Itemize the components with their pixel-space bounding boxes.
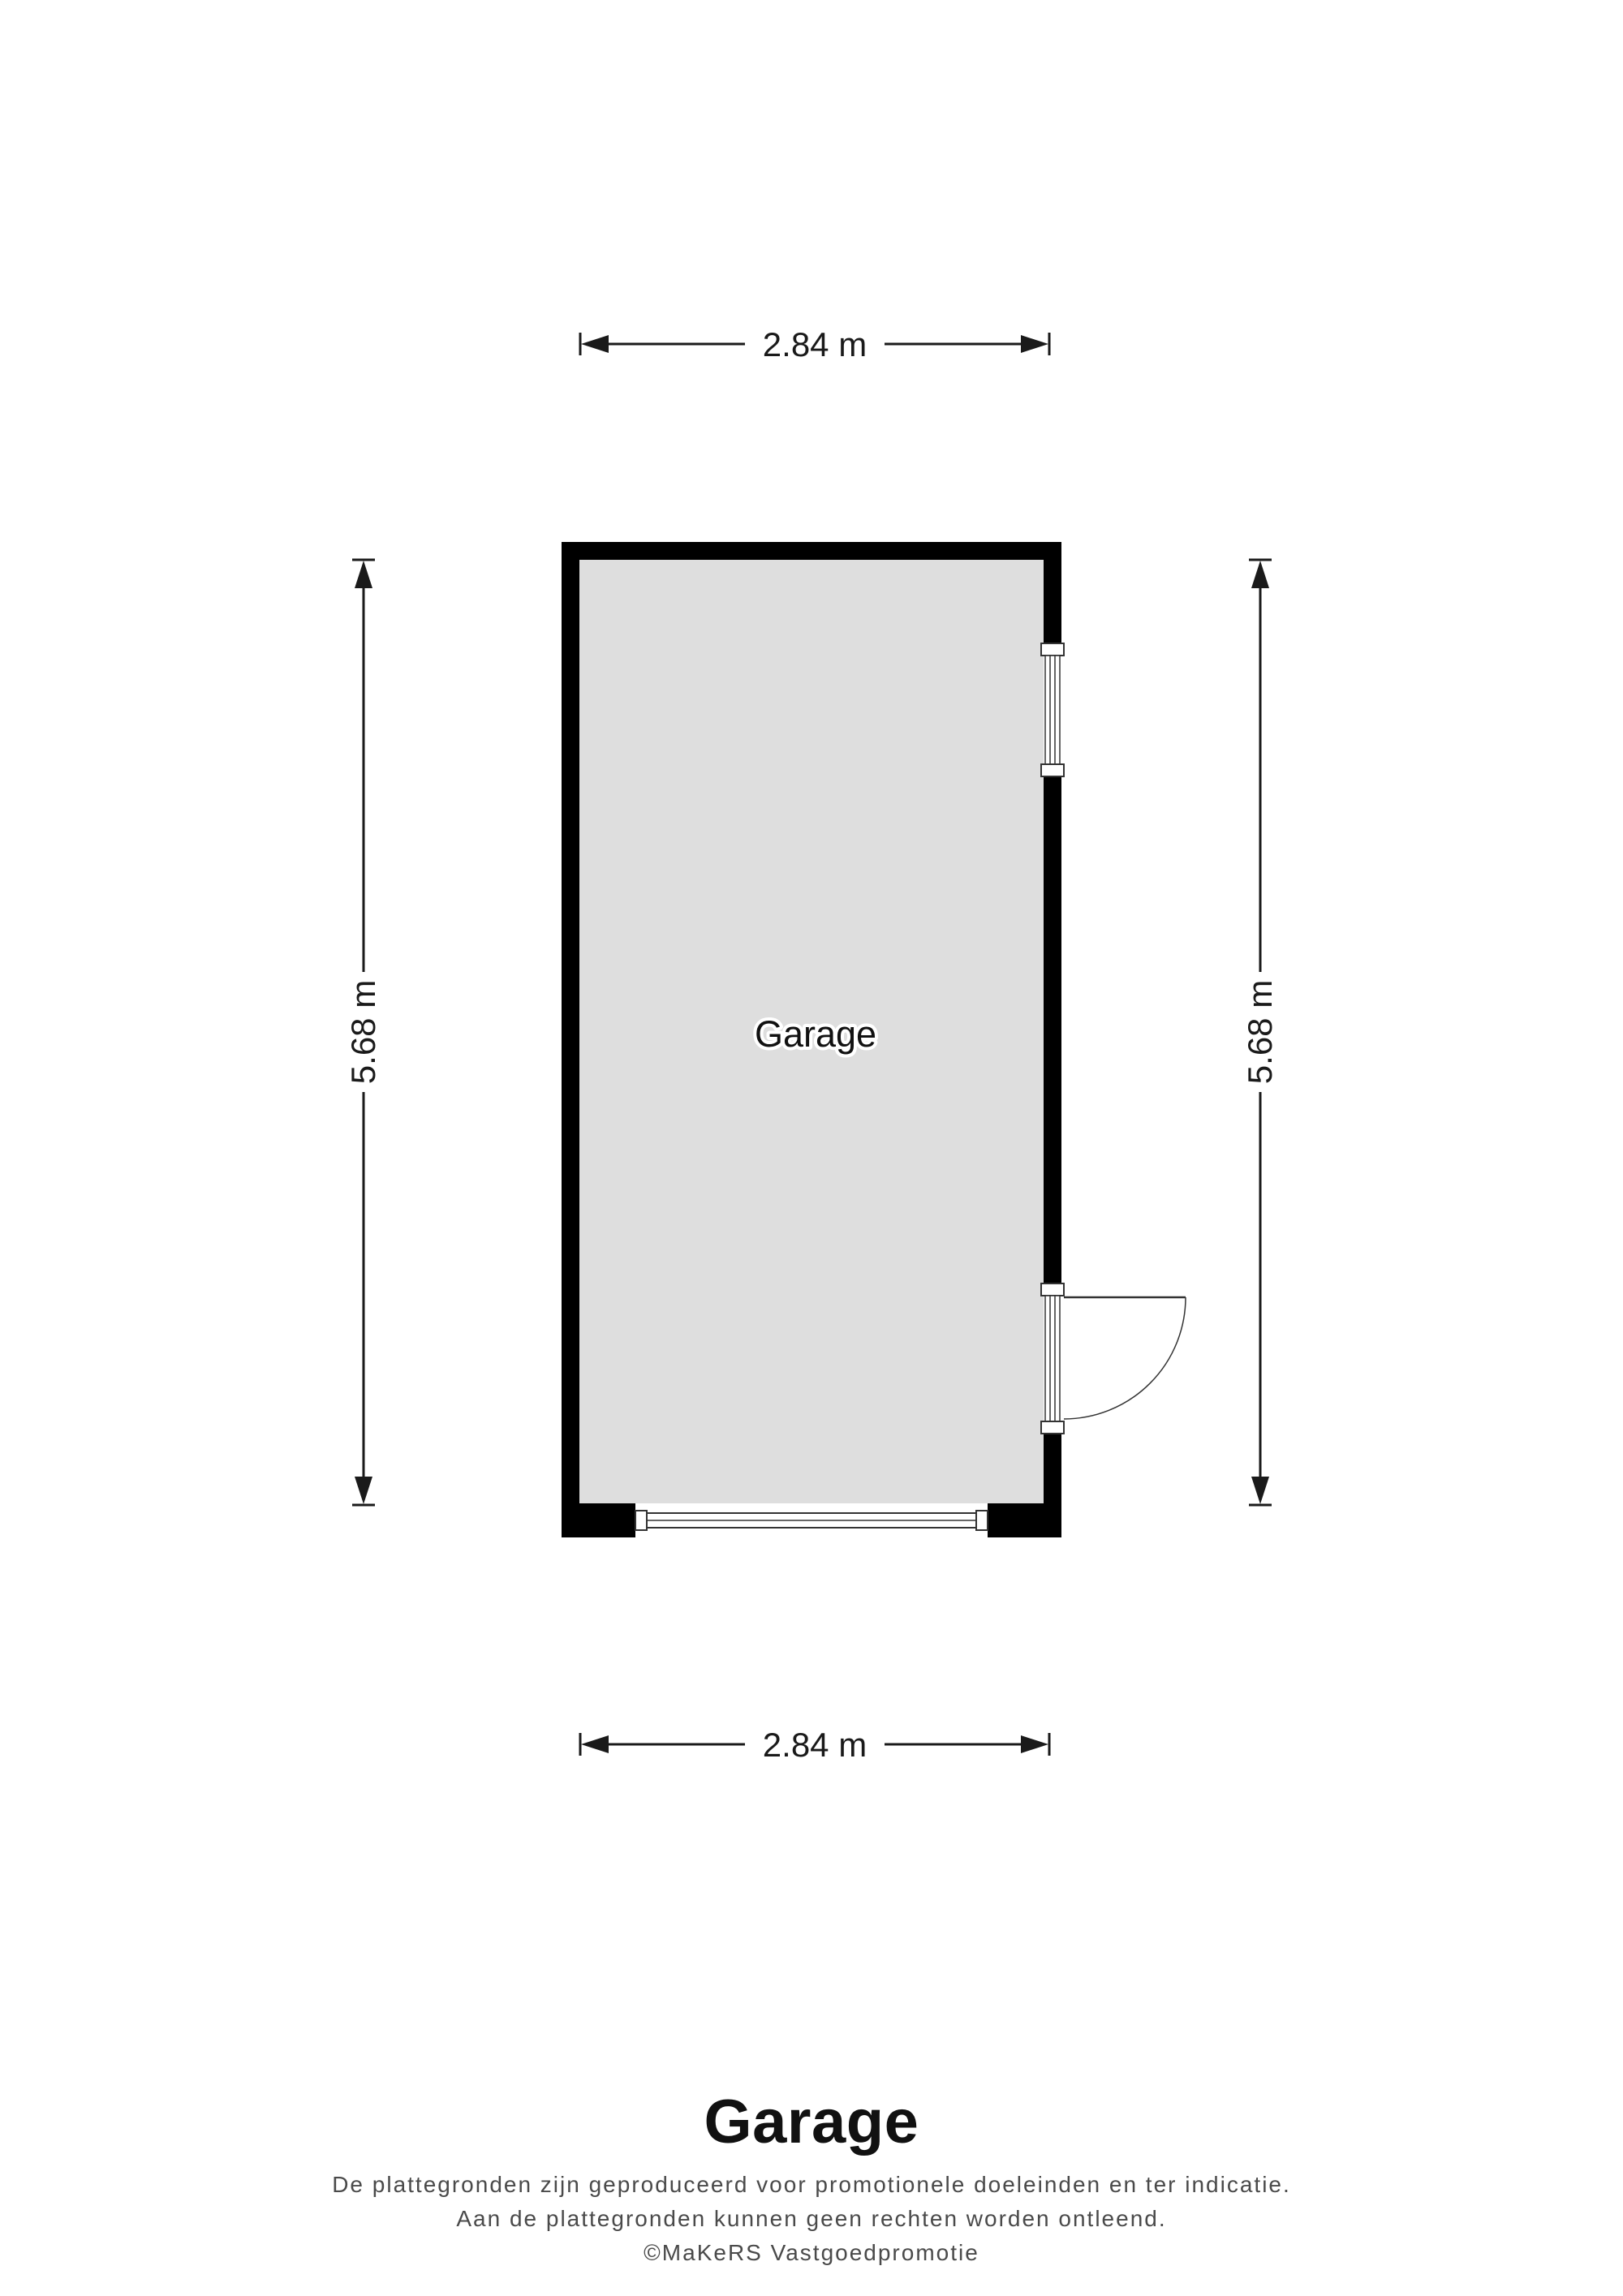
floor-plan-page: Garage 2.84 m 2.84 m [0, 0, 1623, 2296]
window-glass [1045, 656, 1060, 764]
door-swing-arc [1064, 1297, 1186, 1419]
disclaimer: De plattegronden zijn geproduceerd voor … [0, 2168, 1623, 2270]
dimension-left-arrow-top [355, 561, 372, 588]
disclaimer-line-1: De plattegronden zijn geproduceerd voor … [0, 2168, 1623, 2202]
dimension-top-arrow-left [581, 335, 609, 353]
dimension-bottom-arrow-left [581, 1735, 609, 1753]
door-jamb-top [1041, 1283, 1064, 1296]
window-sill-bottom [1041, 764, 1064, 776]
dimension-right-arrow-top [1251, 561, 1269, 588]
disclaimer-line-3: ©MaKeRS Vastgoedpromotie [0, 2236, 1623, 2270]
dimension-top-arrow-right [1021, 335, 1048, 353]
garage-door-cap-right [976, 1511, 988, 1530]
wall-bottom-left-stub [562, 1503, 635, 1537]
dimension-left-arrow-bottom [355, 1477, 372, 1504]
door-frame [1045, 1296, 1060, 1421]
wall-right-upper [1044, 542, 1061, 643]
window-sill-top [1041, 643, 1064, 656]
door-symbol [1041, 1283, 1186, 1434]
garage-door-symbol [635, 1511, 988, 1530]
door-jamb-bottom [1041, 1421, 1064, 1434]
wall-right-middle [1044, 776, 1061, 1283]
plan-title: Garage [0, 2092, 1623, 2153]
room-label: Garage [755, 1013, 876, 1055]
dimension-bottom-label: 2.84 m [763, 1726, 867, 1764]
wall-left [562, 542, 579, 1537]
garage-door-cap-left [635, 1511, 647, 1530]
dimension-left-label: 5.68 m [344, 980, 382, 1084]
dimension-right-arrow-bottom [1251, 1477, 1269, 1504]
window-symbol [1041, 643, 1064, 776]
dimension-bottom-arrow-right [1021, 1735, 1048, 1753]
floor-plan-canvas: Garage 2.84 m 2.84 m [0, 0, 1623, 2296]
dimension-right-label: 5.68 m [1241, 980, 1279, 1084]
dimension-top-label: 2.84 m [763, 325, 867, 363]
wall-bottom-right-stub [988, 1503, 1061, 1537]
wall-top [562, 542, 1061, 560]
disclaimer-line-2: Aan de plattegronden kunnen geen rechten… [0, 2202, 1623, 2236]
